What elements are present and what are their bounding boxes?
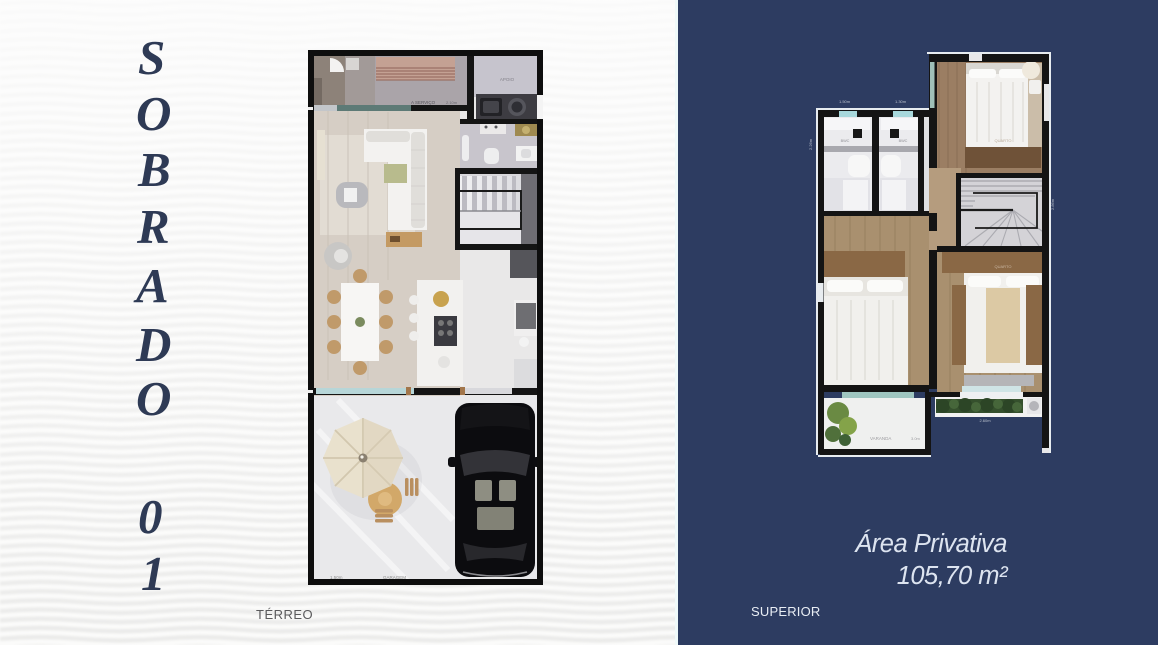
svg-text:2.10m: 2.10m [446, 100, 458, 105]
svg-text:APOIO: APOIO [500, 77, 515, 82]
svg-text:BWC: BWC [899, 139, 908, 143]
svg-text:2.86m: 2.86m [1050, 198, 1055, 210]
svg-text:QUARTO: QUARTO [995, 138, 1012, 143]
svg-text:A SERVIÇO: A SERVIÇO [411, 100, 436, 105]
svg-text:BWC: BWC [841, 139, 850, 143]
svg-text:2.60m: 2.60m [979, 418, 991, 423]
svg-text:2.26m: 2.26m [808, 138, 813, 150]
svg-text:1.30m: 1.30m [895, 99, 907, 104]
svg-text:1.50m: 1.50m [839, 99, 851, 104]
svg-text:QUARTO: QUARTO [995, 264, 1012, 269]
svg-text:VARANDA: VARANDA [870, 436, 891, 441]
svg-text:3.0m: 3.0m [911, 436, 921, 441]
